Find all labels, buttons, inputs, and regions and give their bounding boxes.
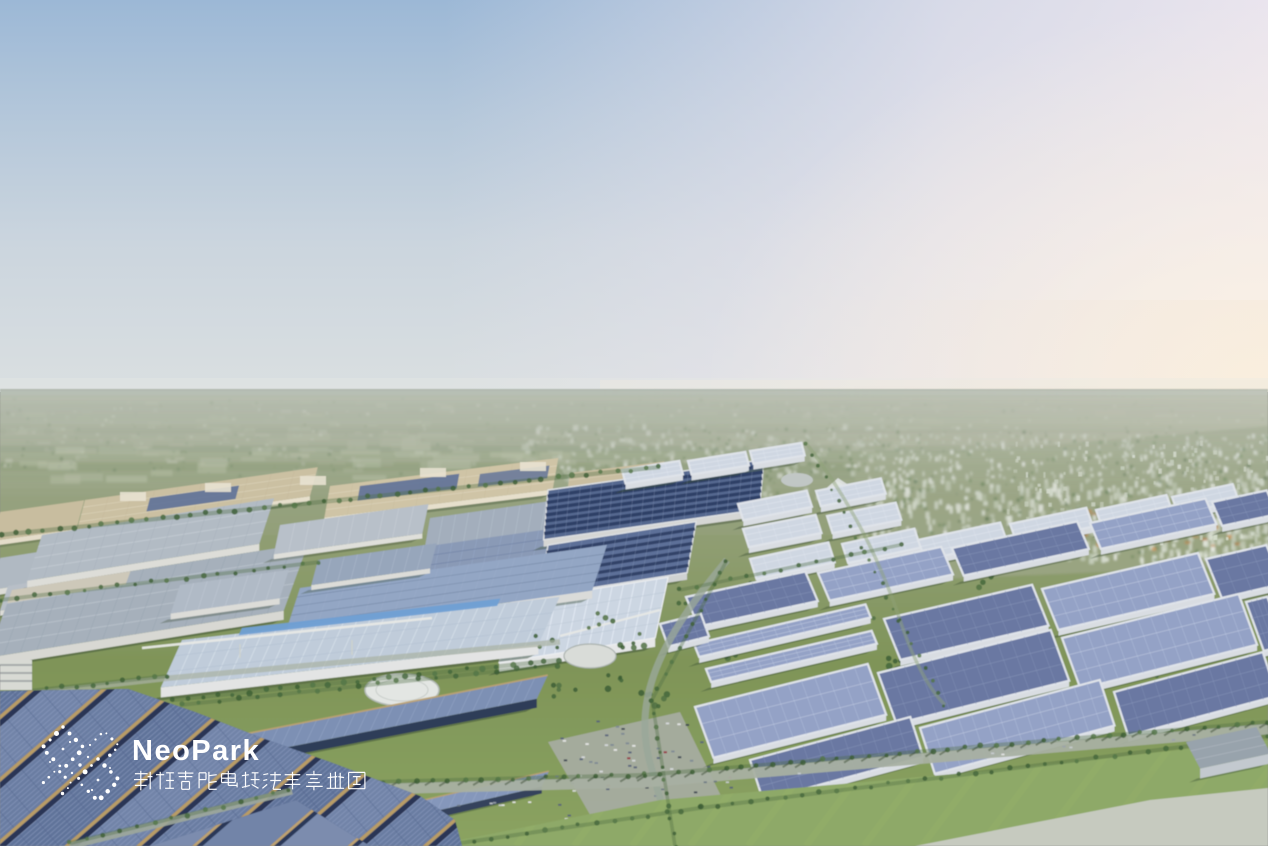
svg-text:NeoPark: NeoPark — [132, 735, 260, 767]
